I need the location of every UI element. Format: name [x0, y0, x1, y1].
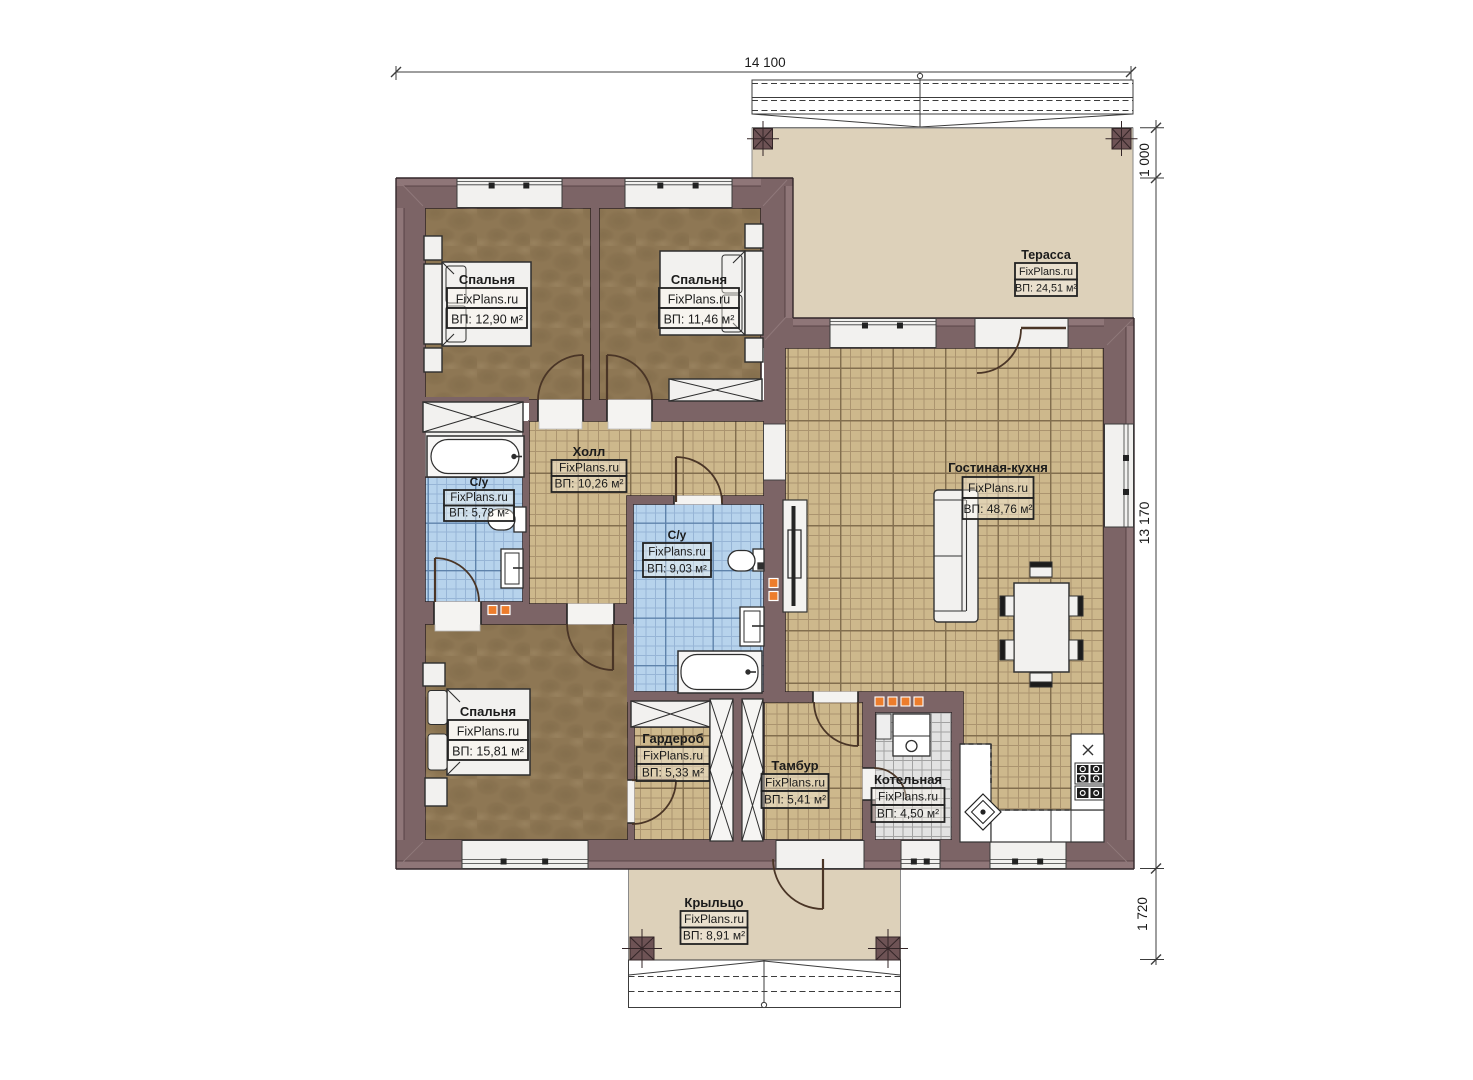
svg-text:Спальня: Спальня	[671, 272, 727, 287]
svg-text:FixPlans.ru: FixPlans.ru	[765, 776, 825, 790]
svg-text:FixPlans.ru: FixPlans.ru	[457, 725, 520, 739]
svg-text:FixPlans.ru: FixPlans.ru	[456, 293, 519, 307]
svg-text:ВП: 24,51 м²: ВП: 24,51 м²	[1015, 283, 1077, 295]
svg-text:FixPlans.ru: FixPlans.ru	[559, 461, 619, 475]
svg-text:ВП: 15,81 м²: ВП: 15,81 м²	[452, 745, 524, 759]
svg-text:FixPlans.ru: FixPlans.ru	[878, 790, 938, 804]
svg-text:FixPlans.ru: FixPlans.ru	[684, 912, 744, 926]
svg-text:FixPlans.ru: FixPlans.ru	[1019, 266, 1073, 278]
svg-text:С/у: С/у	[470, 475, 489, 489]
svg-text:1 000: 1 000	[1137, 143, 1152, 177]
svg-text:Терасса: Терасса	[1021, 248, 1072, 262]
svg-text:FixPlans.ru: FixPlans.ru	[643, 749, 703, 763]
svg-text:Тамбур: Тамбур	[771, 758, 818, 773]
svg-text:ВП: 8,91 м²: ВП: 8,91 м²	[683, 929, 745, 943]
svg-text:ВП: 48,76 м²: ВП: 48,76 м²	[964, 502, 1033, 516]
svg-text:FixPlans.ru: FixPlans.ru	[968, 481, 1028, 495]
svg-text:ВП: 11,46 м²: ВП: 11,46 м²	[664, 313, 735, 327]
svg-text:ВП: 10,26 м²: ВП: 10,26 м²	[555, 477, 624, 491]
svg-text:FixPlans.ru: FixPlans.ru	[450, 492, 508, 504]
svg-text:Котельная: Котельная	[874, 772, 942, 787]
svg-text:ВП: 5,33 м²: ВП: 5,33 м²	[642, 766, 704, 780]
svg-text:13 170: 13 170	[1136, 501, 1152, 544]
svg-text:ВП: 12,90 м²: ВП: 12,90 м²	[451, 313, 523, 327]
svg-text:ВП: 9,03 м²: ВП: 9,03 м²	[647, 564, 707, 576]
svg-text:Гардероб: Гардероб	[642, 731, 703, 746]
svg-text:Гостиная-кухня: Гостиная-кухня	[948, 460, 1048, 475]
svg-text:ВП: 5,78 м²: ВП: 5,78 м²	[449, 508, 509, 520]
svg-text:1 720: 1 720	[1135, 897, 1150, 931]
svg-text:Холл: Холл	[573, 444, 606, 459]
svg-text:Спальня: Спальня	[459, 272, 515, 287]
svg-text:FixPlans.ru: FixPlans.ru	[648, 547, 706, 559]
svg-text:ВП: 4,50 м²: ВП: 4,50 м²	[877, 807, 939, 821]
svg-text:Спальня: Спальня	[460, 704, 516, 719]
svg-text:С/у: С/у	[668, 528, 687, 542]
svg-text:ВП: 5,41 м²: ВП: 5,41 м²	[764, 793, 826, 807]
svg-text:FixPlans.ru: FixPlans.ru	[668, 293, 731, 307]
svg-text:14 100: 14 100	[744, 55, 785, 70]
svg-text:Крыльцо: Крыльцо	[684, 895, 743, 910]
